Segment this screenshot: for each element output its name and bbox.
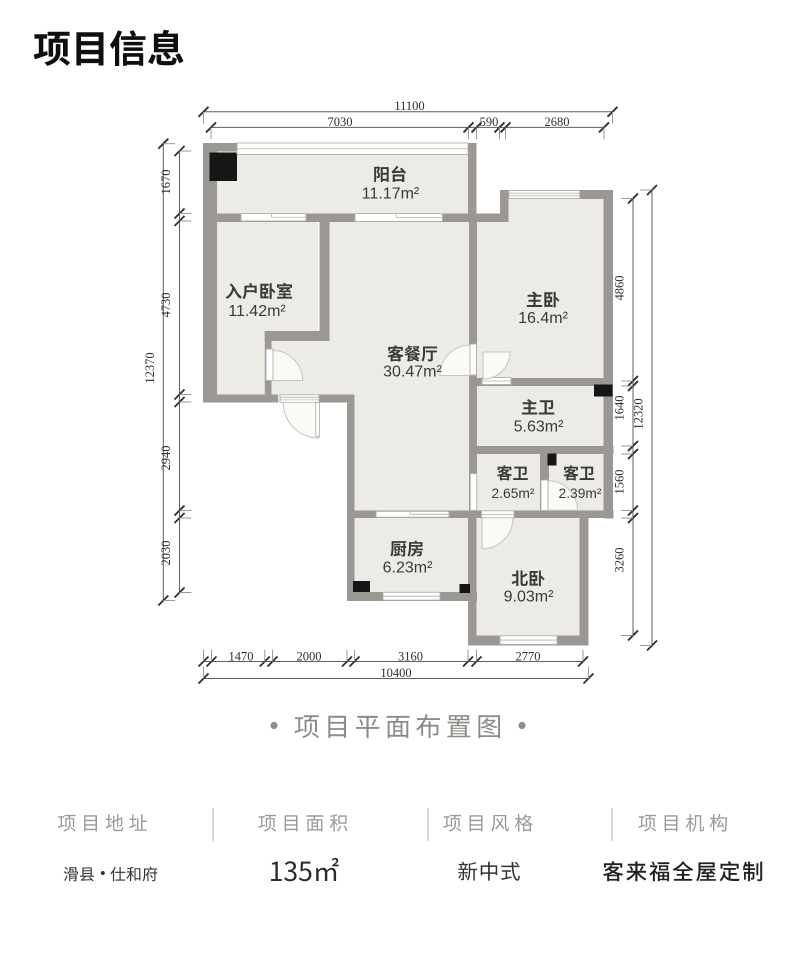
svg-text:5.63m²: 5.63m² [514, 419, 564, 436]
svg-text:2.65m²: 2.65m² [492, 486, 535, 501]
svg-text:7030: 7030 [328, 115, 353, 129]
svg-text:3160: 3160 [398, 649, 423, 663]
svg-text:4730: 4730 [159, 293, 173, 318]
svg-text:4860: 4860 [613, 276, 627, 301]
svg-text:16.4m²: 16.4m² [518, 310, 568, 327]
svg-text:2680: 2680 [545, 115, 570, 129]
svg-text:11.42m²: 11.42m² [228, 303, 286, 320]
svg-text:12370: 12370 [143, 352, 157, 383]
svg-text:2940: 2940 [159, 446, 173, 471]
svg-text:3260: 3260 [613, 548, 627, 573]
svg-text:6.23m²: 6.23m² [383, 560, 433, 577]
svg-text:9.03m²: 9.03m² [504, 589, 554, 606]
svg-text:1670: 1670 [159, 170, 173, 195]
svg-text:1640: 1640 [613, 396, 627, 421]
svg-text:2030: 2030 [159, 541, 173, 566]
svg-text:10400: 10400 [380, 666, 411, 680]
svg-text:2.39m²: 2.39m² [559, 486, 602, 501]
svg-text:2770: 2770 [516, 649, 541, 663]
svg-text:2000: 2000 [297, 649, 322, 663]
svg-text:30.47m²: 30.47m² [383, 364, 442, 381]
svg-text:12320: 12320 [632, 398, 646, 429]
svg-text:11.17m²: 11.17m² [362, 186, 420, 203]
svg-text:1470: 1470 [229, 649, 254, 663]
svg-text:1560: 1560 [613, 470, 627, 495]
svg-text:11100: 11100 [394, 99, 424, 113]
svg-text:590: 590 [480, 115, 499, 129]
